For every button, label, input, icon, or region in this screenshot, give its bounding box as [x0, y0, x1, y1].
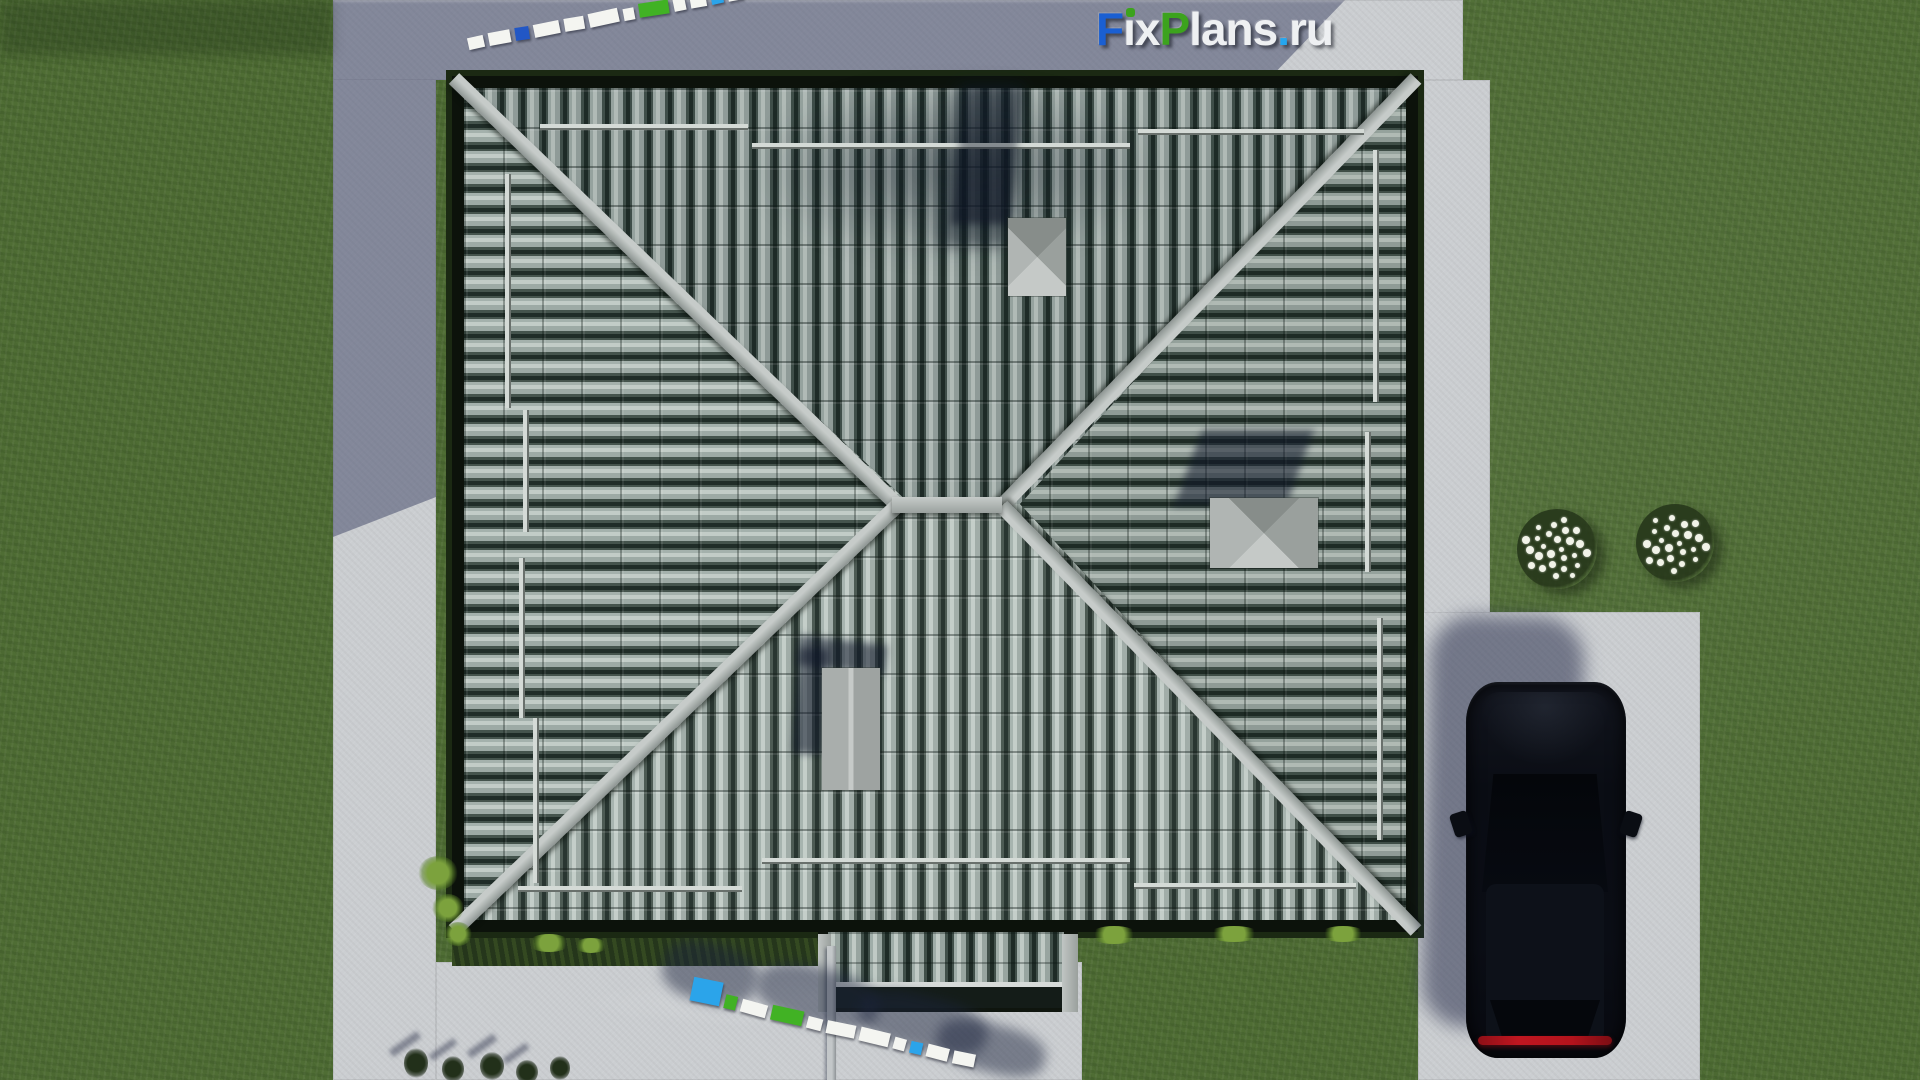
flower [1576, 540, 1584, 548]
snow-rail [505, 174, 511, 408]
plant [1208, 926, 1260, 942]
grass-shadow [0, 0, 333, 55]
watermark-block-blue_dark [514, 26, 530, 41]
flower [1572, 553, 1577, 558]
flower [1575, 563, 1580, 568]
flower [1535, 552, 1543, 560]
flower [1664, 525, 1670, 531]
watermark-block-white [622, 7, 635, 21]
flower [1693, 557, 1698, 562]
flower [1692, 520, 1699, 527]
flower [1551, 522, 1557, 528]
logo-letter: . [1277, 2, 1289, 56]
car-taillight [1478, 1036, 1612, 1045]
flower [1559, 547, 1564, 552]
flower [1684, 531, 1692, 539]
flower [1547, 550, 1555, 558]
flower [1541, 544, 1546, 549]
flower [1522, 536, 1530, 544]
flower [1653, 518, 1658, 523]
plant-dark [550, 1056, 570, 1080]
flower [1680, 549, 1686, 555]
flower [1561, 555, 1567, 561]
logo-letter: ı [1123, 2, 1135, 56]
snow-rail [1365, 432, 1371, 572]
watermark-block-white [892, 1037, 907, 1052]
watermark-block-blue_light [909, 1041, 923, 1055]
chimney-cap [1008, 218, 1066, 296]
flower [1669, 515, 1675, 521]
flower [1702, 543, 1710, 551]
flower [1677, 541, 1682, 546]
plant [528, 934, 570, 952]
flower [1583, 549, 1591, 557]
fixplans-logo: FıxPlans.ru [1096, 2, 1333, 56]
logo-letter: ru [1289, 2, 1333, 56]
car-hood [1480, 692, 1610, 766]
snow-rail [1134, 883, 1356, 889]
plant [1320, 926, 1366, 942]
flower [1667, 555, 1674, 562]
plant [1090, 926, 1138, 944]
flower [1679, 561, 1685, 567]
plant-dark [516, 1060, 538, 1080]
flower [1691, 547, 1696, 552]
snow-rail [1138, 129, 1364, 135]
flower [1566, 537, 1574, 545]
flower [1561, 566, 1567, 572]
flower [1659, 538, 1664, 543]
watermark-block-green [723, 994, 738, 1010]
plant [444, 922, 472, 946]
flower [1539, 565, 1546, 572]
flower [1546, 531, 1552, 537]
flower [1561, 517, 1567, 523]
logo-letter: x [1135, 2, 1160, 56]
plant [574, 938, 608, 953]
chimney-east [1210, 498, 1318, 568]
plant-dark [480, 1052, 504, 1080]
flower [1672, 530, 1679, 537]
plant-dark [404, 1048, 428, 1078]
flower [1646, 557, 1653, 564]
snow-rail [1373, 150, 1379, 402]
flower [1549, 561, 1556, 568]
plant [432, 894, 464, 922]
flower [1528, 562, 1535, 569]
flower [1665, 544, 1673, 552]
flower-bush [1517, 509, 1597, 589]
flower [1536, 525, 1541, 530]
flower-bush [1636, 504, 1714, 582]
plant [418, 856, 458, 890]
logo-letter: F [1096, 2, 1123, 56]
flower [1657, 559, 1664, 566]
snow-rail [523, 410, 529, 532]
flower [1535, 536, 1540, 541]
flower [1652, 546, 1660, 554]
chimney-south [822, 668, 880, 790]
flower [1681, 521, 1688, 528]
flower [1553, 573, 1559, 579]
car-windshield [1482, 774, 1608, 892]
right-path [1424, 80, 1490, 616]
flower [1695, 534, 1703, 542]
flower [1526, 546, 1534, 554]
snow-rail [762, 858, 1130, 864]
flower [1554, 536, 1561, 543]
flower [1570, 573, 1575, 578]
flower [1643, 540, 1651, 548]
snow-rail [1377, 618, 1383, 840]
main-ridge [892, 497, 1002, 513]
plant-dark [442, 1056, 464, 1080]
snow-rail [518, 886, 742, 892]
flower [1671, 568, 1677, 574]
snow-rail [533, 718, 539, 883]
snow-rail [752, 143, 1130, 149]
logo-letter: lans [1189, 2, 1277, 56]
porch-post-right [1062, 934, 1078, 1012]
porch-roof-tiles [828, 932, 1064, 984]
snow-rail [519, 558, 525, 718]
snow-rail [540, 124, 748, 130]
logo-i-dot [1126, 8, 1135, 17]
flower [1652, 529, 1657, 534]
flower [1562, 527, 1569, 534]
logo-letter: P [1159, 2, 1189, 56]
parked-car [1466, 682, 1626, 1058]
aerial-house-render: FıxPlans.ru [0, 0, 1920, 1080]
chimney-cap [1210, 498, 1318, 568]
chimney-north [1008, 218, 1066, 296]
chimney-cap [822, 668, 880, 790]
flower [1573, 527, 1580, 534]
